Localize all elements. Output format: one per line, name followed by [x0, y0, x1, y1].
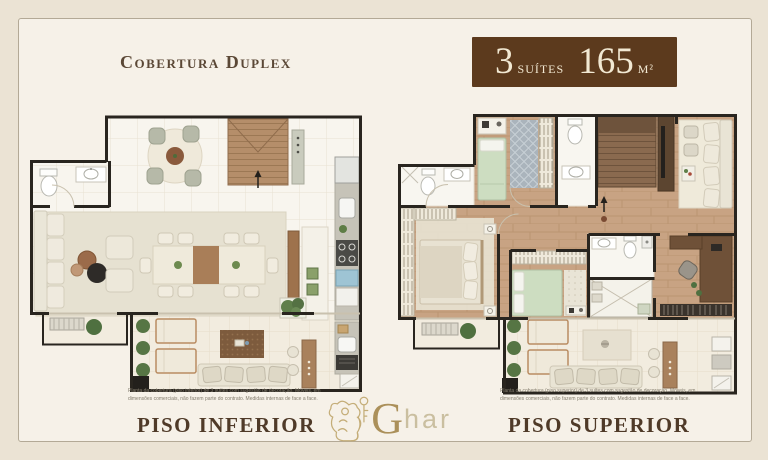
master-suite: [400, 208, 496, 316]
brand-logo: Ghar: [328, 390, 452, 448]
kitchen-counter: [335, 157, 359, 320]
tv-panel: [658, 115, 674, 191]
dishwasher: [336, 270, 358, 286]
bar-counter: [302, 340, 316, 388]
specs-badge: 3 Suítes 165 m²: [472, 37, 677, 87]
poster-title: Cobertura Duplex: [120, 52, 292, 73]
suite2-rug: [510, 120, 538, 188]
label-piso-superior: Piso Superior: [508, 413, 690, 438]
label-piso-inferior: Piso Inferior: [137, 413, 316, 438]
suite2-wardrobe: [539, 118, 553, 188]
suite3-wardrobe: [512, 251, 586, 264]
master-wardrobe: [400, 208, 414, 316]
logo-rest: har: [404, 404, 452, 435]
bar-counter: [663, 342, 677, 388]
lion-key-icon: [328, 392, 377, 446]
poster: Cobertura Duplex 3 Suítes 165 m²: [0, 0, 768, 460]
floor-plan-piso-inferior: [30, 112, 362, 396]
fridge: [335, 157, 359, 183]
logo-initial: G: [371, 397, 403, 441]
suites-label: Suítes: [518, 62, 565, 77]
herb-plant: [339, 225, 347, 233]
suites-count: 3: [495, 37, 514, 87]
kitchen-sink: [339, 198, 355, 218]
tv-lounge: [679, 120, 732, 208]
suite3: [512, 251, 586, 316]
disclaimer-inferior: Planta da cobertura (piso inferior) de 3…: [128, 388, 328, 403]
stair-cabinet: [292, 130, 304, 184]
floor-plan-piso-superior: [398, 112, 738, 396]
round-dining-set: [147, 126, 202, 186]
disclaimer-superior: Planta da cobertura (piso superior) de 3…: [500, 388, 700, 403]
cooktop: [336, 240, 358, 266]
suite2: [478, 118, 553, 200]
stairs-down: [228, 119, 288, 188]
area-value: 165: [578, 37, 634, 87]
area-unit: m²: [638, 62, 654, 77]
